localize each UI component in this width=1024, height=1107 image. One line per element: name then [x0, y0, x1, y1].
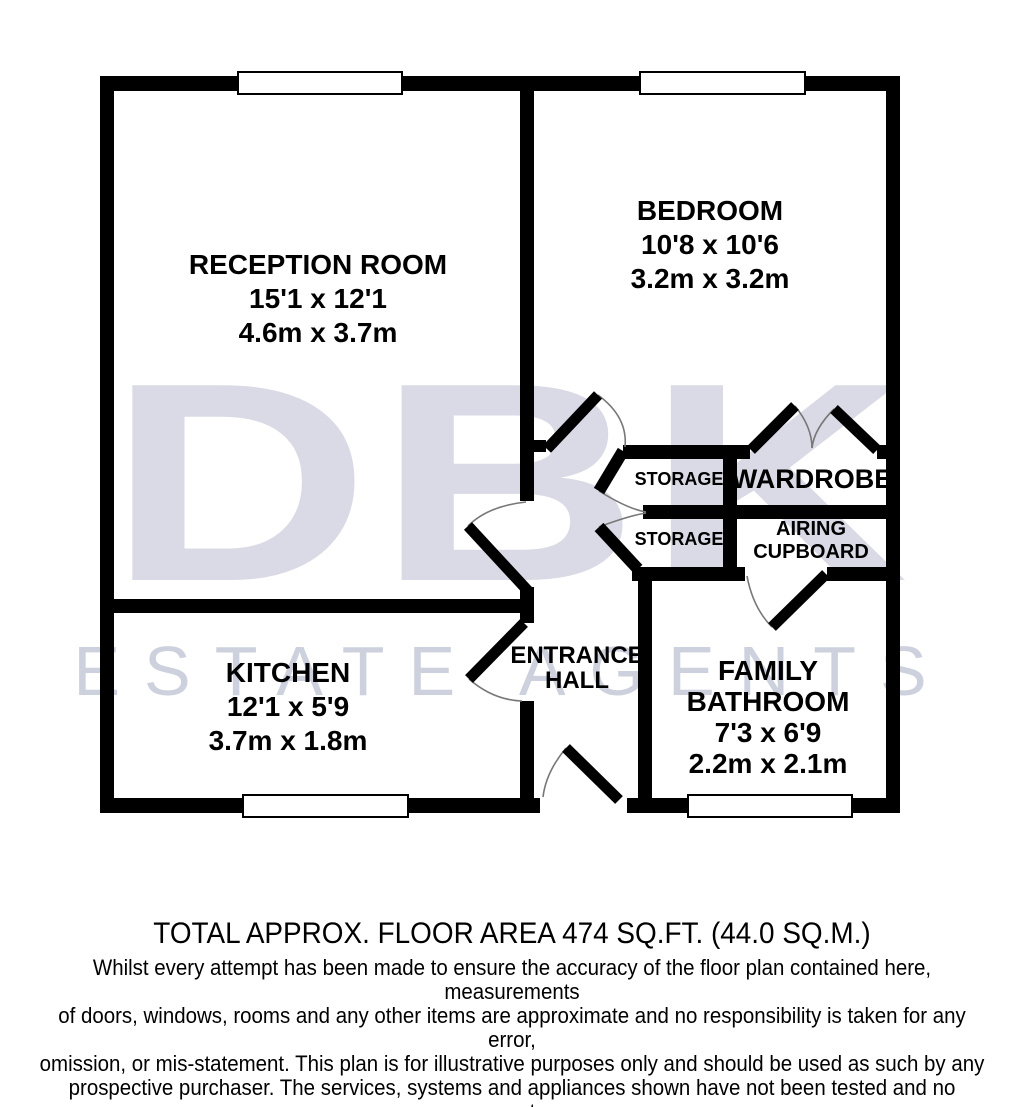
window-reception [238, 72, 402, 94]
room-name: FAMILY [687, 655, 850, 686]
arc-storage-lower-door [599, 513, 646, 527]
room-dimensions-imperial: 7'3 x 6'9 [687, 717, 850, 748]
room-name: WARDROBE [732, 466, 893, 493]
room-label-storage-upper: STORAGE [635, 470, 724, 488]
room-name: HALL [510, 668, 643, 693]
door-front [566, 748, 619, 800]
wall-right [886, 76, 900, 813]
arc-bathroom-door [747, 576, 772, 627]
arc-bedroom-door [598, 395, 625, 447]
room-name: ENTRANCE [510, 643, 643, 668]
arc-front-door [543, 748, 566, 797]
room-label-airing-cupboard: AIRING CUPBOARD [753, 518, 869, 564]
total-floor-area: TOTAL APPROX. FLOOR AREA 474 SQ.FT. (44.… [36, 917, 988, 951]
room-name: STORAGE [635, 470, 724, 488]
arc-reception-door [468, 502, 526, 526]
room-dimensions-imperial: 12'1 x 5'9 [209, 690, 368, 724]
room-label-kitchen: KITCHEN 12'1 x 5'9 3.7m x 1.8m [209, 656, 368, 758]
window-bedroom [640, 72, 805, 94]
room-dimensions-metric: 3.2m x 3.2m [631, 262, 790, 296]
room-label-storage-lower: STORAGE [635, 530, 724, 548]
wall-storage-middle [643, 505, 900, 519]
room-name: AIRING [753, 518, 869, 541]
room-dimensions-metric: 4.6m x 3.7m [189, 316, 447, 350]
arc-storage-upper-door [599, 491, 646, 512]
disclaimer-line: of doors, windows, rooms and any other i… [36, 1004, 988, 1052]
wall-bedroom-bottom-right [877, 445, 900, 459]
arc-wardrobe-door-right [812, 409, 834, 448]
room-name: STORAGE [635, 530, 724, 548]
room-dimensions-imperial: 15'1 x 12'1 [189, 282, 447, 316]
door-bedroom [547, 395, 598, 449]
footer: TOTAL APPROX. FLOOR AREA 474 SQ.FT. (44.… [36, 917, 988, 1107]
disclaimer-line: prospective purchaser. The services, sys… [36, 1076, 988, 1107]
door-storage-upper [599, 451, 623, 491]
room-name: CUPBOARD [753, 541, 869, 564]
room-label-bedroom: BEDROOM 10'8 x 10'6 3.2m x 3.2m [631, 194, 790, 296]
disclaimer-line: Whilst every attempt has been made to en… [36, 956, 988, 1004]
room-name: BATHROOM [687, 686, 850, 717]
wall-kitchen-divider [100, 599, 526, 613]
room-label-family-bathroom: FAMILY BATHROOM 7'3 x 6'9 2.2m x 2.1m [687, 655, 850, 779]
floorplan-page: DBK ESTATE AGENTS [0, 0, 1024, 1107]
room-name: KITCHEN [209, 656, 368, 690]
room-label-reception: RECEPTION ROOM 15'1 x 12'1 4.6m x 3.7m [189, 248, 447, 350]
wall-kitchen-divider-vert [520, 701, 534, 813]
room-dimensions-metric: 2.2m x 2.1m [687, 748, 850, 779]
door-storage-lower [599, 527, 638, 569]
door-bathroom [772, 574, 826, 627]
wall-left [100, 76, 114, 813]
room-dimensions-imperial: 10'8 x 10'6 [631, 228, 790, 262]
window-bathroom [688, 795, 852, 817]
room-name: RECEPTION ROOM [189, 248, 447, 282]
window-kitchen [243, 795, 408, 817]
wall-reception-divider [520, 76, 534, 501]
room-label-wardrobe: WARDROBE [732, 466, 893, 493]
room-name: BEDROOM [631, 194, 790, 228]
disclaimer-line: omission, or mis-statement. This plan is… [36, 1052, 988, 1076]
wall-bathroom-top-right [827, 567, 886, 581]
room-label-entrance-hall: ENTRANCE HALL [510, 643, 643, 693]
door-wardrobe-left [751, 406, 795, 450]
room-dimensions-metric: 3.7m x 1.8m [209, 724, 368, 758]
arc-wardrobe-door-left [795, 406, 812, 448]
door-wardrobe-right [834, 409, 877, 450]
door-reception [468, 526, 529, 592]
